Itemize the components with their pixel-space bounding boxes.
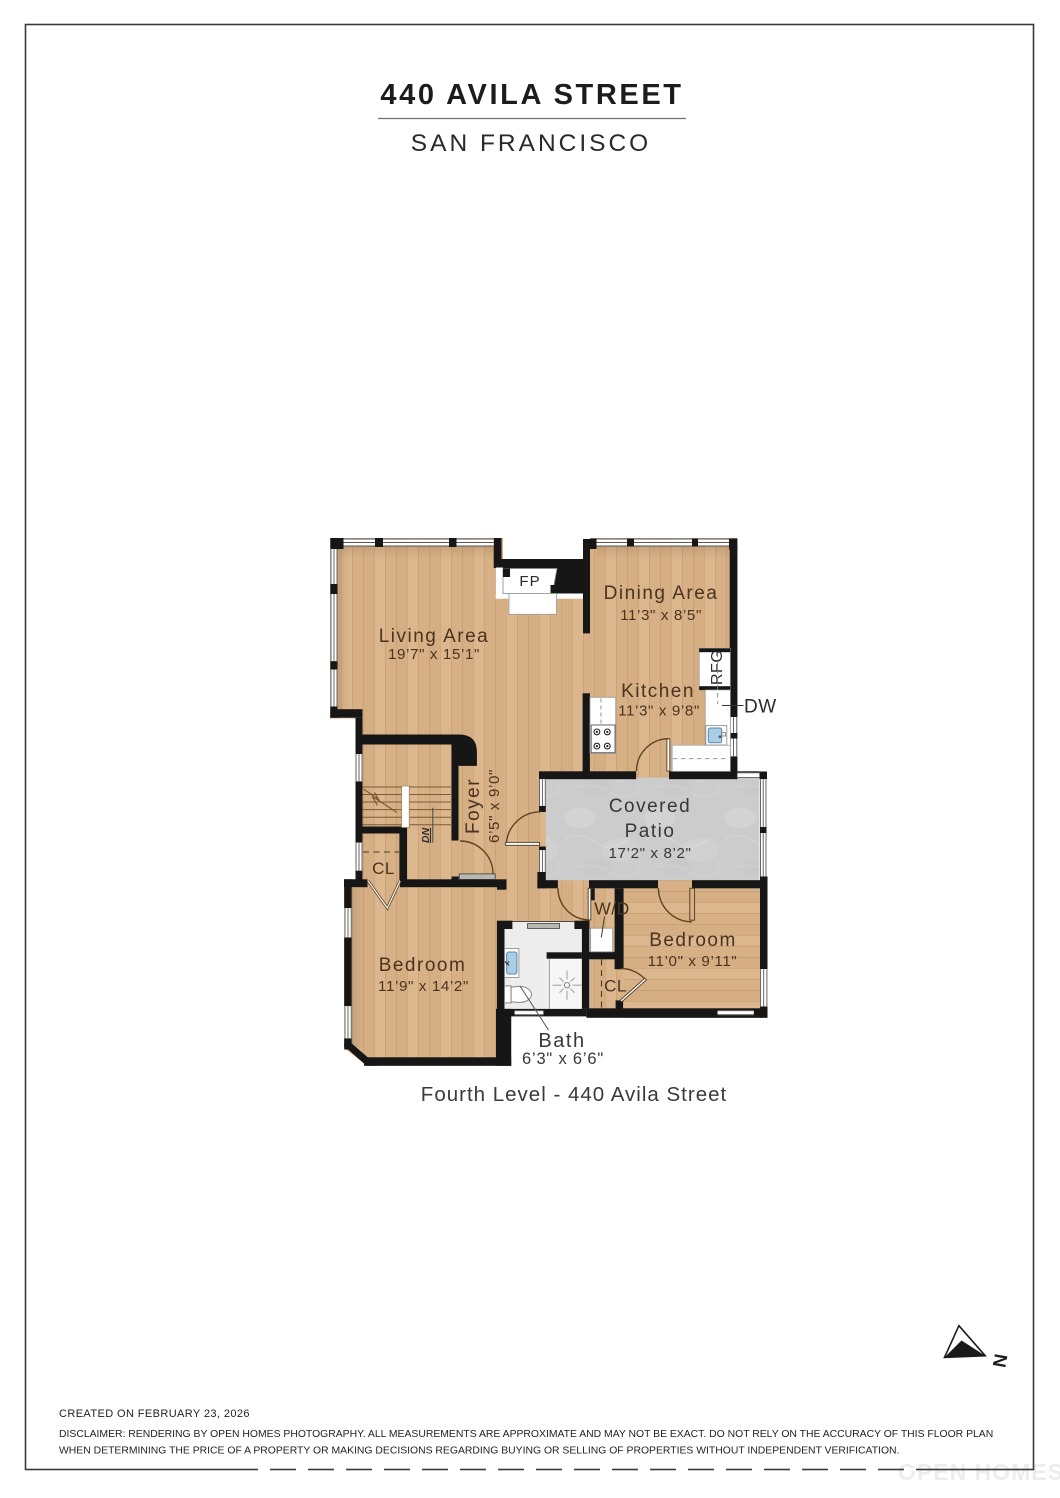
- svg-text:FP: FP: [519, 573, 540, 590]
- svg-text:17’2" x 8’2": 17’2" x 8’2": [609, 845, 692, 862]
- svg-text:Bedroom: Bedroom: [649, 930, 737, 951]
- svg-text:DISCLAIMER: RENDERING BY OPEN: DISCLAIMER: RENDERING BY OPEN HOMES PHOT…: [59, 1429, 993, 1440]
- svg-text:11’3" x 9’8": 11’3" x 9’8": [618, 703, 700, 720]
- svg-text:Dining Area: Dining Area: [604, 583, 719, 604]
- svg-text:Patio: Patio: [625, 821, 676, 842]
- svg-text:19’7" x 15’1": 19’7" x 15’1": [388, 646, 480, 663]
- svg-text:Bath: Bath: [538, 1030, 585, 1052]
- svg-text:Living Area: Living Area: [379, 626, 490, 647]
- svg-text:Fourth Level - 440 Avila Stree: Fourth Level - 440 Avila Street: [421, 1083, 727, 1106]
- svg-text:11’0" x 9’11": 11’0" x 9’11": [648, 953, 738, 970]
- svg-text:SAN FRANCISCO: SAN FRANCISCO: [411, 130, 651, 157]
- svg-text:CL: CL: [604, 977, 627, 996]
- svg-text:6’5" x 9’0": 6’5" x 9’0": [486, 769, 503, 843]
- svg-text:OPEN HOMES: OPEN HOMES: [898, 1459, 1060, 1485]
- svg-text:Covered: Covered: [609, 796, 691, 817]
- svg-text:W/D: W/D: [594, 899, 630, 919]
- svg-text:WHEN DETERMINING THE PRICE OF: WHEN DETERMINING THE PRICE OF A PROPERTY…: [59, 1446, 899, 1457]
- svg-text:Bedroom: Bedroom: [379, 955, 467, 976]
- svg-text:11’9" x 14’2": 11’9" x 14’2": [378, 978, 469, 995]
- svg-text:CREATED ON FEBRUARY 23, 2026: CREATED ON FEBRUARY 23, 2026: [59, 1408, 250, 1420]
- svg-text:CL: CL: [372, 859, 395, 878]
- svg-text:DN: DN: [420, 827, 432, 843]
- svg-text:DW: DW: [744, 697, 777, 718]
- svg-text:Foyer: Foyer: [463, 778, 484, 834]
- svg-text:6’3" x 6’6": 6’3" x 6’6": [522, 1050, 604, 1068]
- svg-text:N: N: [989, 1352, 1012, 1369]
- svg-text:440 AVILA STREET: 440 AVILA STREET: [380, 79, 683, 111]
- svg-text:Kitchen: Kitchen: [621, 681, 695, 702]
- svg-text:11’3" x 8’5": 11’3" x 8’5": [620, 607, 702, 624]
